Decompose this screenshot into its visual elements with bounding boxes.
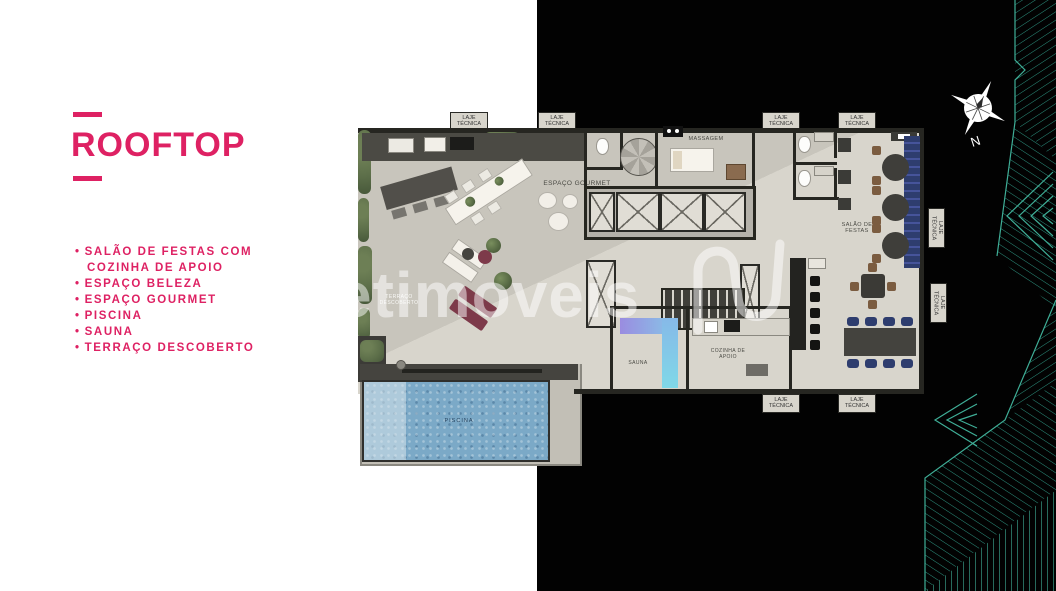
pillow (673, 151, 682, 169)
toilet (798, 170, 811, 187)
bullet-icon: • (75, 294, 81, 306)
wall (584, 167, 623, 170)
pouf (548, 212, 569, 231)
chair (868, 300, 877, 309)
pool: PISCINA (362, 380, 550, 462)
sauna-bench (662, 318, 678, 388)
chair (872, 146, 881, 155)
chair (901, 359, 913, 368)
wall (574, 389, 924, 394)
bullet-icon: • (75, 326, 81, 338)
bath-counter (814, 166, 834, 176)
netimoveis-logo-mark (688, 232, 792, 340)
outdoor-shower (396, 360, 406, 370)
chair (872, 186, 881, 195)
grill (450, 137, 474, 150)
lounge-chair (838, 198, 851, 210)
round-table (882, 194, 909, 221)
bullet-icon: • (75, 246, 81, 258)
chair (872, 176, 881, 185)
chair (847, 359, 859, 368)
wood-chest (726, 164, 746, 180)
lounge-chair (838, 170, 851, 184)
long-table (844, 328, 916, 356)
massage-bed (670, 148, 714, 172)
feature-text: TERRAÇO DESCOBERTO (85, 342, 255, 354)
bar-stool (810, 308, 820, 318)
bar-counter (790, 258, 806, 350)
room-label-piscina: PISCINA (424, 418, 494, 424)
laje-tecnica-label: LAJE TÉCNICA (762, 394, 800, 413)
hedge-plants (358, 198, 369, 242)
chair (901, 317, 913, 326)
bullet-icon: • (75, 342, 81, 354)
room-label-massagem: MASSAGEM (676, 136, 736, 142)
feature-text: SAUNA (85, 326, 134, 338)
spiral-staircase (620, 138, 658, 176)
chair (887, 282, 896, 291)
bar-stool (810, 324, 820, 334)
list-item: •SALÃO DE FESTAS COM COZINHA DE APOIO (75, 244, 297, 276)
feature-text: ESPAÇO GOURMET (85, 294, 217, 306)
list-item: •SAUNA (75, 324, 297, 340)
feature-text: SALÃO DE FESTAS COM COZINHA DE APOIO (85, 246, 253, 274)
accent-dash-top (73, 112, 102, 117)
pool-edge-line (402, 369, 542, 373)
counter-unit (424, 137, 446, 152)
list-item: •ESPAÇO BELEZA (75, 276, 297, 292)
knob (675, 129, 679, 133)
compass-north-label: N (969, 133, 983, 150)
feature-text: PISCINA (85, 310, 143, 322)
laje-tecnica-label: LAJE TÉCNICA (930, 283, 947, 323)
bullet-icon: • (75, 278, 81, 290)
toilet (596, 138, 609, 155)
list-item: •PISCINA (75, 308, 297, 324)
bar-stool (810, 340, 820, 350)
round-table (882, 232, 909, 259)
elevator-shaft (660, 192, 704, 232)
wall (793, 197, 839, 200)
chair (865, 359, 877, 368)
elevator-shaft (589, 192, 615, 232)
slide-canvas: { "panel": { "title": "ROOFTOP", "bullet… (0, 0, 1056, 591)
chair (865, 317, 877, 326)
page-title: ROOFTOP (71, 126, 246, 165)
elevator-shaft (616, 192, 660, 232)
laje-tecnica-label: LAJE TÉCNICA (928, 208, 945, 248)
feature-text: ESPAÇO BELEZA (85, 278, 203, 290)
round-table (882, 154, 909, 181)
chair (868, 263, 877, 272)
room-label-cozinha: COZINHA DE APOIO (704, 348, 752, 360)
square-table (861, 274, 885, 298)
bath-counter (814, 132, 834, 142)
bar-stool (810, 292, 820, 302)
chair (847, 317, 859, 326)
chair (883, 359, 895, 368)
mat (746, 364, 768, 376)
pool-ledge (364, 382, 406, 460)
lounge-chair (838, 138, 851, 152)
knob (667, 129, 671, 133)
chair (850, 282, 859, 291)
hedge-plants (360, 340, 384, 362)
plant (486, 238, 501, 253)
toilet (798, 136, 811, 153)
chair (872, 254, 881, 263)
room-label-sauna: SAUNA (620, 360, 656, 366)
bullet-icon: • (75, 310, 81, 322)
laje-tecnica-label: LAJE TÉCNICA (838, 394, 876, 413)
wall (834, 128, 837, 158)
compass-icon: N (943, 80, 1013, 152)
feature-list: •SALÃO DE FESTAS COM COZINHA DE APOIO •E… (75, 244, 297, 356)
bar-shelf (808, 258, 826, 269)
list-item: •ESPAÇO GOURMET (75, 292, 297, 308)
counter-sink (388, 138, 414, 153)
bar-stool (810, 276, 820, 286)
accent-dash-bottom (73, 176, 102, 181)
list-item: •TERRAÇO DESCOBERTO (75, 340, 297, 356)
elevator-shaft (704, 192, 746, 232)
room-label-salao: SALÃO DE FESTAS (834, 222, 880, 234)
watermark: etimoveis (336, 258, 640, 332)
wall (834, 168, 837, 200)
pouf (538, 192, 557, 209)
wall (793, 162, 837, 165)
chair (883, 317, 895, 326)
pouf (562, 194, 578, 209)
